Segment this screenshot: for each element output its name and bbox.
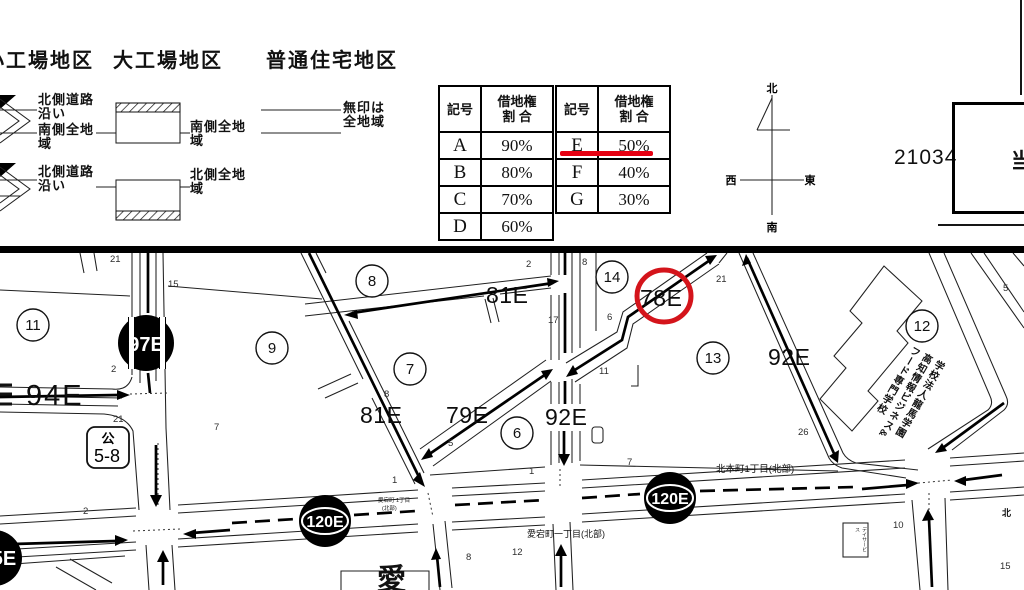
parcel-number: 2 [526,259,531,270]
route-value-5E-clipped: 5E [0,530,22,586]
road-value-81e-lower: 81E [360,402,402,428]
small-factory-symbol-2 [0,163,37,211]
large-factory-symbol-1 [96,103,190,143]
block-marker: 8 [356,265,388,297]
park-number: 5-8 [94,446,120,466]
large-factory-symbol-2 [96,180,190,220]
ratio-cell: 40% [598,159,670,186]
adjacent-sheet-char: 当 [1011,145,1024,175]
legend-label: 北側道路 沿い [38,165,94,193]
parcel-number: 8 [466,552,471,563]
legend-label: 北側道路 沿い [38,93,94,121]
street-name: 愛宕町 1丁目 [378,496,410,504]
symbol-cell: F [556,159,598,186]
compass-east-label: 東 [805,173,817,187]
ratio-cell: 80% [481,159,553,186]
park-box: 公 5-8 [87,427,129,468]
parcel-number: 5 [1003,283,1008,294]
road-value-92e-diagonal: 92E [768,344,810,370]
dayservice-label: デイサービス [846,527,867,556]
svg-text:7: 7 [406,361,414,378]
compass-south-label: 南 [767,220,778,234]
road-value-81e-upper: 81E [486,282,528,308]
block-marker: 6 [501,417,533,449]
parcel-number: 21 [716,274,727,285]
symbol-cell: A [439,132,481,159]
col-header-symbol: 記号 [556,86,598,132]
block-marker: 14 [596,261,628,293]
block-marker: 9 [256,332,288,364]
rosenka-map-sheet: 小工場地区 大工場地区 普通住宅地区 [0,0,1024,590]
parcel-number: 2 [111,364,116,375]
route-value-120E-right: 120E [644,472,696,524]
district-small-factory: 小工場地区 [0,44,94,73]
compass-north-label: 北 [767,81,778,95]
frame-line [938,224,1024,226]
black-triangle-icon [0,95,16,109]
svg-text:13: 13 [705,350,722,367]
monument-icon [592,427,603,443]
block-marker: 13 [697,342,729,374]
street-name: 北本町1丁目(北部) [716,463,794,475]
map-top-border [0,246,1024,253]
legend-label: 北側全地 域 [190,168,246,196]
district-large-factory: 大工場地区 [113,44,223,73]
parcel-number: 6 [607,312,612,323]
parcel-number: 5 [448,438,453,449]
ratio-cell: 70% [481,186,553,213]
road-value-97e: 97E [128,334,164,356]
street-name: 愛宕町一丁目(北部) [527,528,605,539]
ratio-cell: 90% [481,132,553,159]
compass-west-label: 西 [726,174,737,187]
parcel-number: 12 [512,547,523,558]
symbol-cell: C [439,186,481,213]
park-label: 公 [101,431,114,446]
svg-text:9: 9 [268,340,276,357]
parcel-number: 7 [214,422,219,433]
symbol-cell: G [556,186,598,213]
svg-text:6: 6 [513,425,521,442]
street-name: (北部) [382,504,397,512]
table-row: C70% [439,186,553,213]
road-value-94e: 94E [26,380,84,412]
parcel-number: 15 [168,279,179,290]
ratio-cell: 30% [598,186,670,213]
leasehold-table-abcd: 記号 借地権 割 合 A90% B80% C70% D60% [438,85,554,241]
residential-symbol [261,110,341,133]
parcel-number: 7 [627,457,632,468]
ratio-cell: 60% [481,213,553,240]
svg-text:8: 8 [368,273,376,290]
road-value-78e: 78E [640,285,682,311]
road-value-5e: 5E [0,548,16,570]
svg-text:11: 11 [25,317,41,334]
block-marker: 12 [906,310,938,342]
legend-label: 無印は 全地域 [343,101,385,129]
leasehold-table-efg: 記号 借地権 割 合 E50% F40% G30% [555,85,671,214]
col-header-ratio: 借地権 割 合 [598,86,670,132]
street-name-clipped: 北 [1002,507,1011,518]
table-row: G30% [556,186,670,213]
legend-label: 南側全地 域 [190,120,246,148]
red-highlight-underline [560,151,653,156]
small-factory-symbol-1 [0,95,37,143]
road-value-120e-right: 120E [651,491,689,508]
svg-text:12: 12 [914,318,931,335]
table-row: A90% [439,132,553,159]
parcel-number: 21 [113,414,124,425]
parcel-number: 1 [392,475,397,486]
parcel-number: 2 [83,506,88,517]
parcel-number: 1 [529,466,534,477]
district-residential: 普通住宅地区 [266,44,398,73]
table-row: D60% [439,213,553,240]
clipped-glyph [0,385,12,404]
hatch-band-icon [116,103,180,112]
route-value-120E-left: 120E [299,495,351,547]
road-value-79e: 79E [446,402,488,428]
road-value-92e-vertical: 92E [545,404,587,430]
adjacent-sheet-box: 当 [952,102,1024,214]
svg-text:14: 14 [604,269,621,286]
col-header-symbol: 記号 [439,86,481,132]
parcel-number: 26 [798,427,809,438]
block-marker: 7 [394,353,426,385]
hatch-band-icon [116,211,180,220]
col-header-ratio: 借地権 割 合 [481,86,553,132]
parcel-number: 10 [893,520,904,531]
parcel-number: 8 [384,389,389,400]
block-marker: 11 [17,309,49,341]
sheet-number: 21034 [894,146,957,170]
legend-label: 南側全地 域 [38,123,94,151]
table-row: B80% [439,159,553,186]
black-triangle-icon [0,163,16,177]
symbol-cell: D [439,213,481,240]
parcel-number: 11 [599,366,609,377]
parcel-number: 15 [1000,561,1011,572]
parcel-number: 21 [110,254,121,265]
frame-line [1020,0,1022,95]
parcel-number: 17 [548,315,559,326]
compass-rose: 北 南 西 東 [698,78,858,238]
parcel-number: 8 [582,257,587,268]
symbol-cell: B [439,159,481,186]
road-value-120e-left: 120E [306,514,344,531]
table-row: F40% [556,159,670,186]
route-value-97E: 97E [118,315,174,371]
district-kanji-clipped: 愛 [377,563,406,590]
